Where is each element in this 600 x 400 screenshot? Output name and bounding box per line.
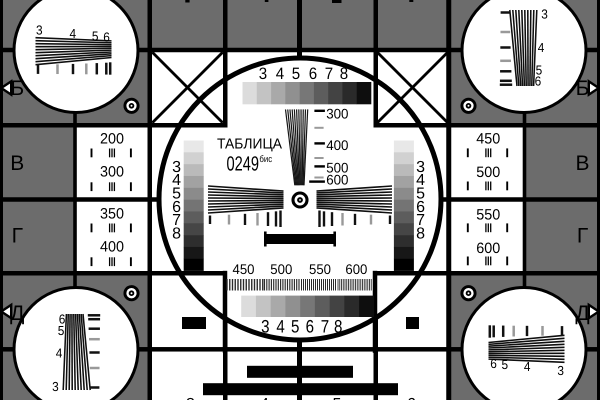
svg-text:6: 6: [535, 74, 542, 89]
svg-text:8: 8: [334, 316, 342, 336]
svg-text:400: 400: [326, 137, 349, 153]
svg-text:4: 4: [260, 396, 269, 400]
svg-text:3: 3: [261, 316, 269, 336]
svg-text:бис: бис: [259, 154, 272, 164]
svg-text:4: 4: [70, 26, 77, 41]
svg-text:8: 8: [416, 225, 425, 242]
svg-text:300: 300: [100, 164, 124, 181]
svg-text:7: 7: [321, 316, 329, 336]
svg-text:4: 4: [276, 316, 284, 336]
svg-text:Г: Г: [577, 225, 588, 248]
svg-text:6: 6: [309, 65, 317, 83]
svg-text:Д: Д: [575, 302, 589, 325]
svg-text:Г: Г: [12, 225, 23, 248]
svg-text:450: 450: [476, 131, 500, 148]
svg-text:550: 550: [476, 206, 500, 223]
svg-text:6: 6: [59, 312, 66, 327]
svg-text:600: 600: [326, 171, 349, 187]
svg-text:5: 5: [502, 357, 509, 372]
svg-text:5: 5: [292, 65, 300, 83]
svg-text:3: 3: [186, 396, 195, 400]
svg-text:4: 4: [538, 40, 545, 55]
svg-text:4: 4: [56, 345, 63, 360]
svg-text:6: 6: [407, 396, 416, 400]
svg-text:6: 6: [103, 29, 110, 44]
svg-text:5: 5: [291, 316, 299, 336]
svg-text:4: 4: [276, 65, 284, 83]
svg-text:4: 4: [524, 359, 531, 374]
svg-text:В: В: [10, 152, 24, 175]
svg-text:350: 350: [100, 206, 124, 223]
svg-text:200: 200: [100, 131, 124, 148]
svg-text:Б: Б: [10, 77, 24, 100]
svg-text:600: 600: [345, 261, 367, 277]
svg-text:3: 3: [259, 65, 267, 83]
svg-text:ТАБЛИЦА: ТАБЛИЦА: [217, 137, 282, 153]
svg-text:3: 3: [557, 363, 564, 378]
svg-text:5: 5: [333, 396, 342, 400]
svg-text:В: В: [575, 152, 589, 175]
svg-text:6: 6: [490, 356, 497, 371]
svg-text:450: 450: [233, 261, 255, 277]
svg-text:3: 3: [36, 23, 43, 38]
svg-text:600: 600: [476, 240, 500, 257]
svg-text:8: 8: [340, 65, 348, 83]
svg-text:7: 7: [325, 65, 333, 83]
svg-text:5: 5: [92, 28, 99, 43]
svg-text:3: 3: [541, 7, 548, 22]
svg-text:300: 300: [326, 106, 349, 122]
svg-text:6: 6: [306, 316, 314, 336]
svg-text:3: 3: [52, 379, 59, 394]
svg-text:Б: Б: [576, 77, 590, 100]
svg-text:400: 400: [100, 239, 124, 256]
svg-text:500: 500: [270, 261, 292, 277]
svg-text:550: 550: [309, 261, 331, 277]
svg-text:0249: 0249: [227, 152, 260, 175]
svg-text:8: 8: [172, 225, 181, 242]
svg-text:500: 500: [476, 164, 500, 181]
